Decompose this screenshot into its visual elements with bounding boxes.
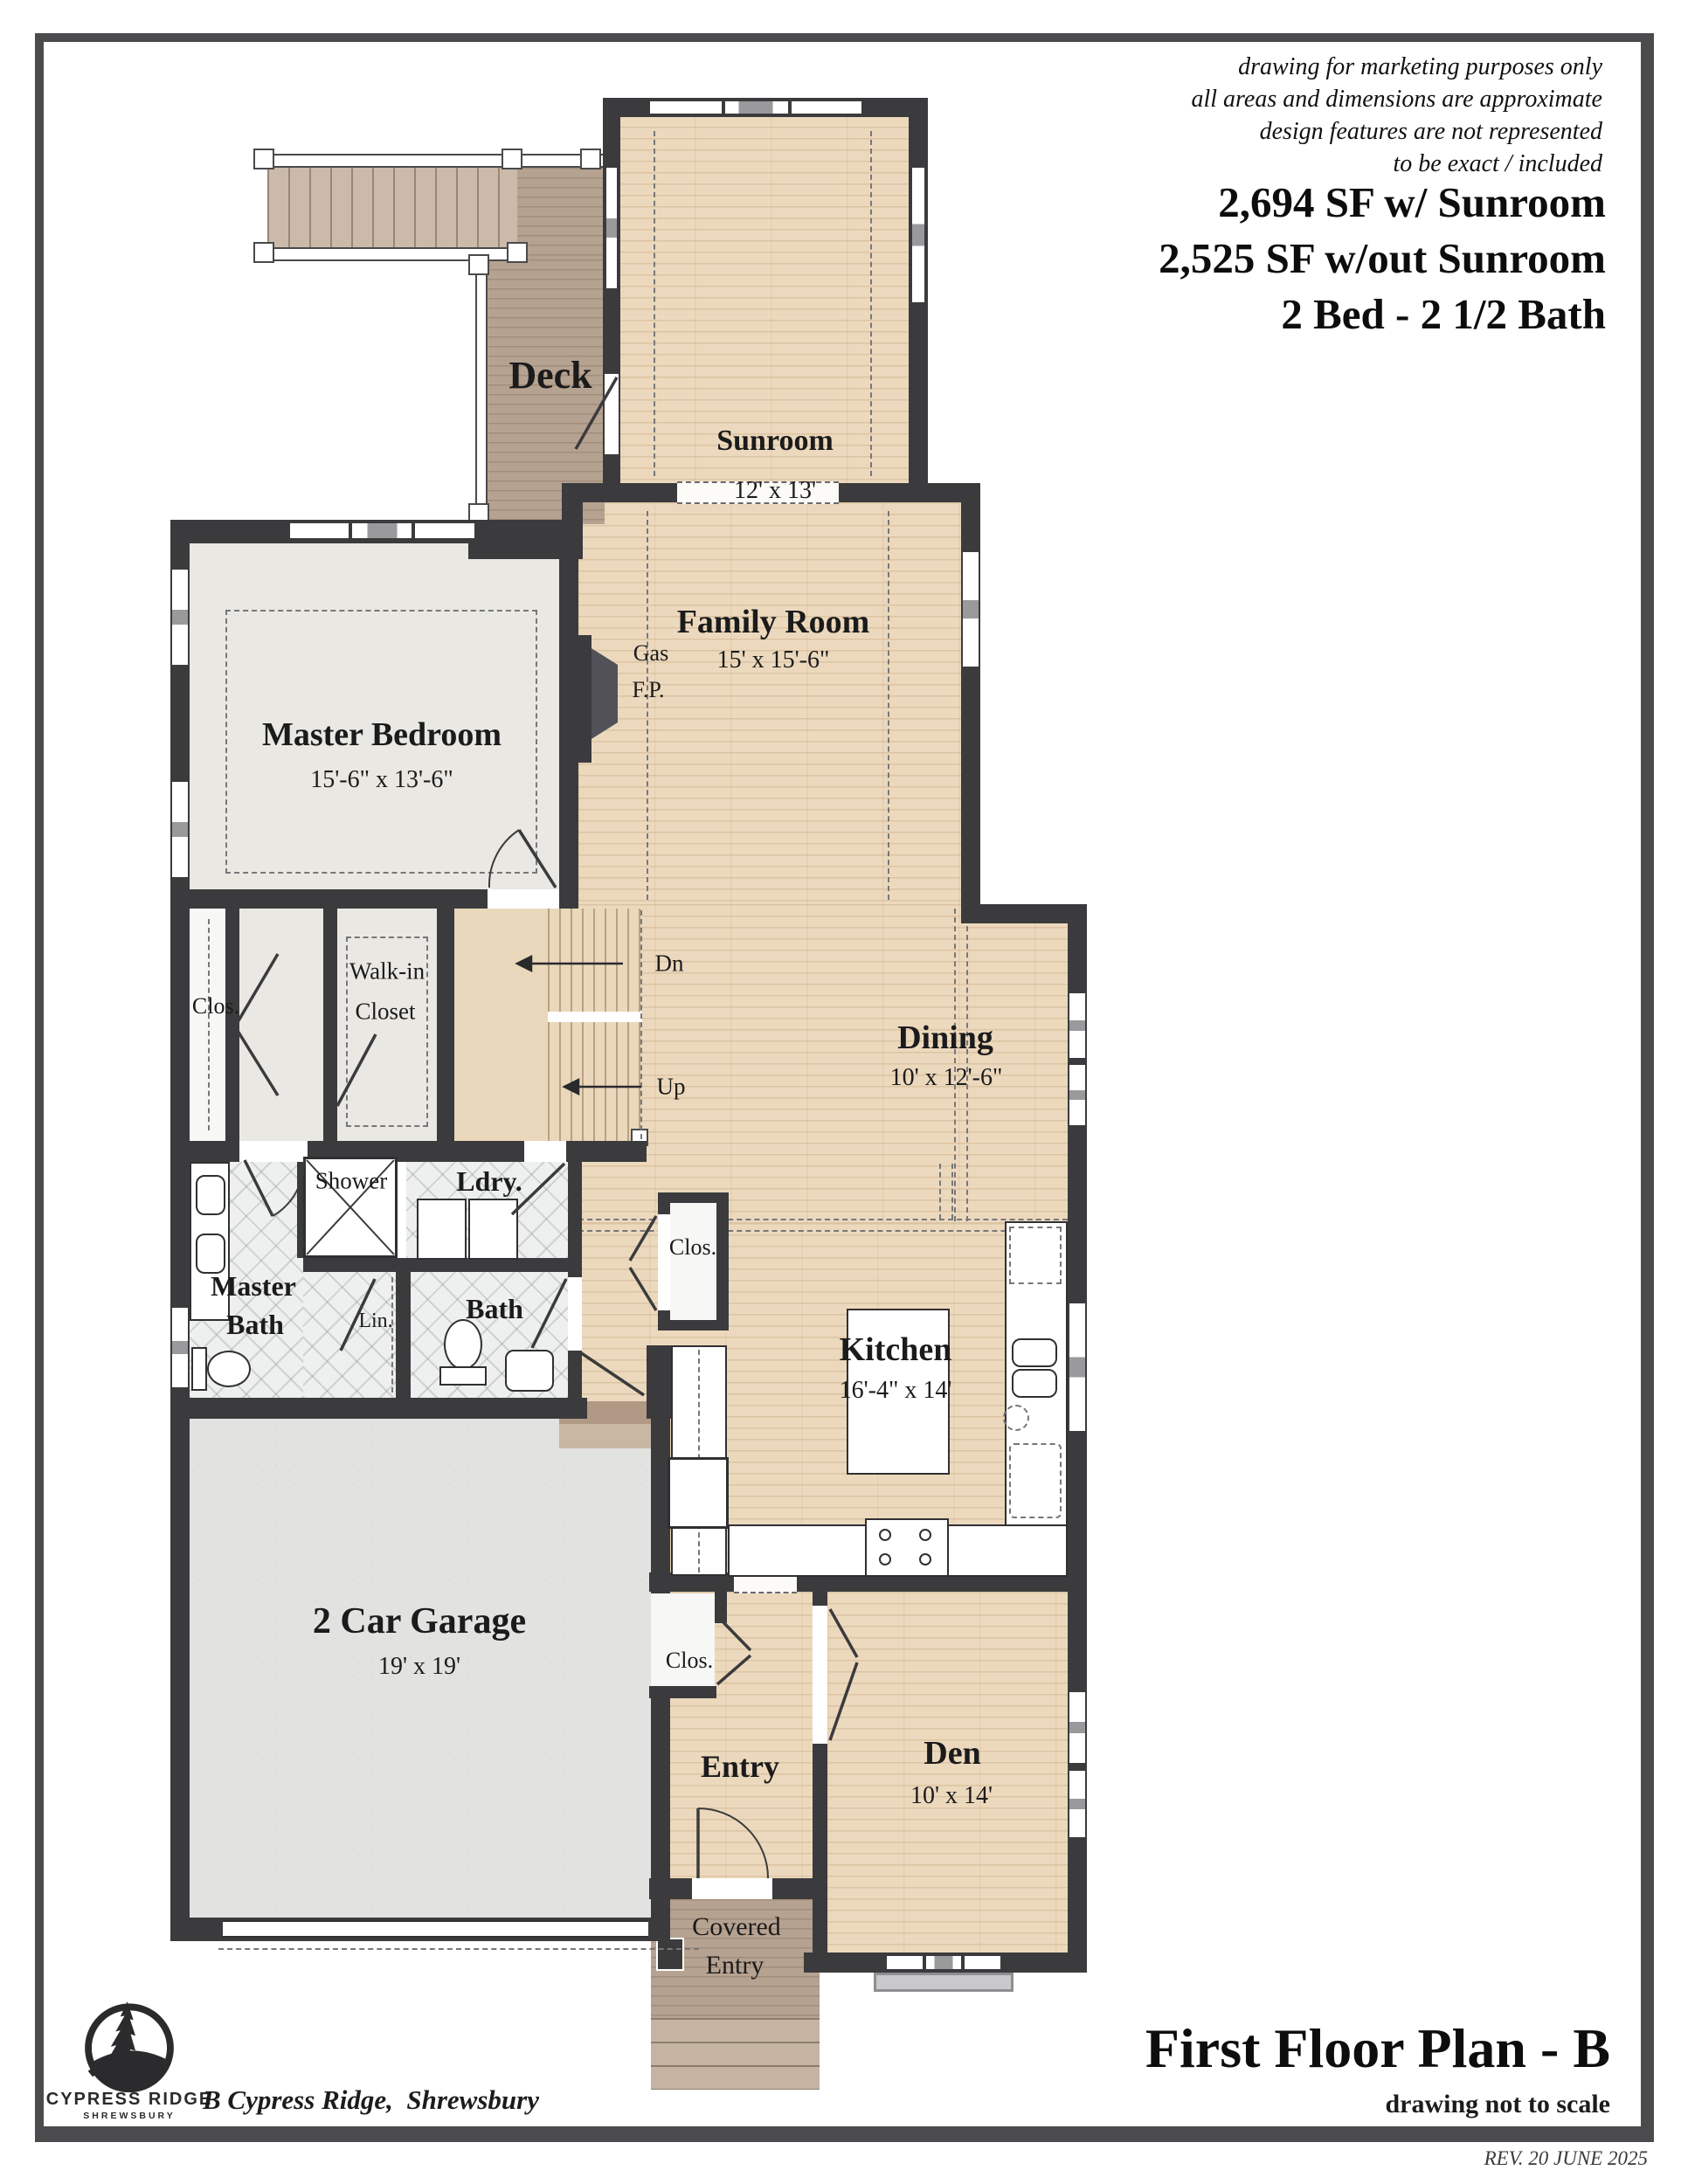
area-summary: 2,694 SF w/ Sunroom 2,525 SF w/out Sunro… [1159,175,1606,342]
logo-subtitle: SHREWSBURY [83,2111,175,2121]
window-master-north [288,522,476,540]
window-mullion [961,1954,965,1971]
kitchen-sink-basin [1012,1338,1057,1367]
bath-toilet-tank [439,1366,487,1386]
area-without-sunroom: 2,525 SF w/out Sunroom [1159,231,1606,287]
opening-front-door [692,1878,772,1899]
garage-door-dashed [218,1948,699,1950]
burner [879,1529,891,1541]
entry-closet-label: Clos. [666,1649,713,1672]
den-dims: 10' x 14' [910,1784,993,1808]
kitchen-dims: 16'-4" x 14' [840,1379,952,1403]
vanity-sink [196,1175,225,1215]
linen-label: Lin. [358,1310,392,1331]
bath-label: Bath [466,1295,523,1323]
disclaimer-line: drawing for marketing purposes only [1191,51,1602,83]
wall-hallcloset-bottom [658,1320,729,1330]
master-toilet-tank [191,1347,207,1391]
disclaimer-text: drawing for marketing purposes only all … [1191,51,1602,180]
walkin-closet-label: Walk-in [349,960,425,984]
deck-post [580,149,601,169]
garage-label: 2 Car Garage [313,1603,526,1640]
disclaimer-line: design features are not represented [1191,115,1602,148]
wall-hall-kitchen [647,1345,671,1419]
stairs-down-label: Dn [655,952,684,976]
window-masterbath-west [170,1306,190,1389]
area-with-sunroom: 2,694 SF w/ Sunroom [1159,175,1606,231]
opening-corridor-bath [239,1141,308,1162]
family-room-label: Family Room [677,605,870,639]
linen-rod-dashed [391,1277,393,1393]
master-bath-label: Master [211,1272,296,1300]
window-mullion [412,522,415,540]
revision-note: REV. 20 JUNE 2025 [1484,2147,1648,2170]
wall-family-right [961,483,980,923]
window-mullion [349,522,352,540]
den-floor [827,1592,1068,1952]
wall-laundry-bath [406,1258,578,1272]
window-family-east [961,550,980,668]
wall-hallcloset-top [658,1192,729,1203]
master-bath-floor2 [303,1258,411,1398]
window-mullion [788,100,792,115]
opening-sunroom-deck-door [605,374,619,454]
master-bedroom-dims: 15'-6" x 13'-6" [310,768,453,792]
covered-entry-label: Covered [692,1914,781,1940]
plan-title: First Floor Plan - B [1145,2016,1610,2081]
entry-label: Entry [701,1751,779,1782]
covered-entry-label: Entry [706,1952,764,1979]
window-mullion [923,1954,926,1971]
deck-stairs [267,168,517,249]
vanity-sink [196,1234,225,1274]
wall-linen-right [396,1272,411,1398]
window-den-east-1 [1068,1690,1087,1765]
window-dining-east-1 [1068,992,1087,1060]
kitchen-sink-basin [1012,1369,1057,1398]
hall-floor [578,1223,649,1419]
window-master-west-1 [170,568,190,667]
stairs-up-flight [548,1022,642,1141]
window-sunroom-north [648,100,863,115]
wall-entrycloset-bottom [649,1686,716,1698]
address-text: B Cypress Ridge, Shrewsbury [203,2084,539,2116]
bath-sink [505,1350,554,1392]
window-den-east-2 [1068,1769,1087,1839]
opening-bath-door [568,1277,582,1351]
kitchen-label: Kitchen [840,1333,952,1366]
window-kitchen-east [1068,1302,1087,1433]
master-closet-rod-dashed [208,919,210,1130]
master-toilet-bowl [207,1351,251,1387]
opening-hallcloset-doors [658,1214,670,1310]
hall-closet-label: Clos. [669,1236,716,1259]
opening-den-doors [813,1606,827,1744]
opening-laundry-door [524,1141,566,1162]
stairs-up-label: Up [657,1075,686,1099]
wall-bath-bottom [170,1398,587,1419]
family-tray-ceiling-dashed [647,511,889,900]
wall-entrycloset-stub [715,1592,727,1623]
master-closet-label: Clos. [192,995,239,1018]
kitchen-dining-opening-dashed [578,1219,1068,1232]
garage-steps [559,1424,651,1448]
den-label: Den [924,1737,980,1770]
stair-divider [548,1012,642,1022]
wall-clos-corridor [225,909,239,1141]
kitchen-beam-dashed [939,1164,953,1220]
upper-cabinet-dashed [1009,1227,1062,1284]
upper-cabinet-dashed [1009,1443,1062,1518]
wall-corridor-walkin [323,909,337,1141]
window-sunroom-west [605,166,619,290]
den-bay-sill [874,1973,1013,1992]
kitchen-range [865,1518,949,1577]
deck-post [468,254,489,275]
floor-plan-page: drawing for marketing purposes only all … [0,0,1688,2184]
disclaimer-line: all areas and dimensions are approximate [1191,83,1602,115]
master-bedroom-label: Master Bedroom [262,718,502,751]
deck-post [253,149,274,169]
wall-hallcloset-right [716,1192,729,1330]
sunroom-label: Sunroom [716,426,834,456]
deck-rail-left [475,259,488,524]
deck-post [253,242,274,263]
covered-entry-steps [651,2018,820,2090]
window-dining-east-2 [1068,1063,1087,1127]
dining-label: Dining [897,1021,993,1054]
wall-walkin-stairs [437,909,454,1144]
deck-label: Deck [508,356,591,395]
sunroom-dims: 12' x 13' [734,479,816,503]
burner [879,1553,891,1565]
gas-fp-label: Gas [633,642,668,665]
laundry-label: Ldry. [456,1167,522,1195]
family-room-dims: 15' x 15'-6" [717,648,830,673]
wall-shower-left [297,1157,303,1258]
logo-name: CYPRESS RIDGE [46,2090,212,2110]
gas-fp-label: F.P. [633,679,665,702]
window-sunroom-east [910,166,926,304]
garage-door [223,1920,648,1938]
walkin-closet-label: Closet [355,1000,415,1024]
stair-edge-dashed [640,910,642,1139]
deck-rail-top [260,154,606,168]
burner [919,1553,931,1565]
burner [919,1529,931,1541]
wall-dining-top [961,904,1087,923]
closet-corridor-floor [229,909,323,1141]
wall-fireplace-back [578,635,591,763]
window-mullion [722,100,725,115]
window-master-west-2 [170,780,190,879]
refrigerator [668,1457,729,1529]
shower-label: Shower [315,1170,388,1193]
deck-post [502,149,522,169]
hall-closet-floor [670,1203,716,1320]
garage-dims: 19' x 19' [378,1655,460,1679]
bath-toilet-bowl [444,1319,482,1370]
stair-landing [454,909,548,1141]
deck-post [507,242,528,263]
bed-bath-count: 2 Bed - 2 1/2 Bath [1159,287,1606,342]
washer [417,1199,467,1260]
scale-note: drawing not to scale [1386,2090,1611,2119]
wall-master-right [559,520,578,889]
wall-laundry-right [568,1141,582,1398]
covered-entry-post [656,1938,684,1971]
dining-dims: 10' x 12'-6" [890,1066,1003,1090]
stairs-down-flight [548,909,642,1012]
wall-linen-top [303,1258,411,1272]
wall-west [170,520,190,1941]
opening-master-door [488,889,559,909]
master-bath-label: Bath [226,1310,284,1338]
dryer [468,1199,518,1260]
window-den-south [885,1954,1002,1971]
cooktop-dashed-circle [1003,1405,1029,1431]
